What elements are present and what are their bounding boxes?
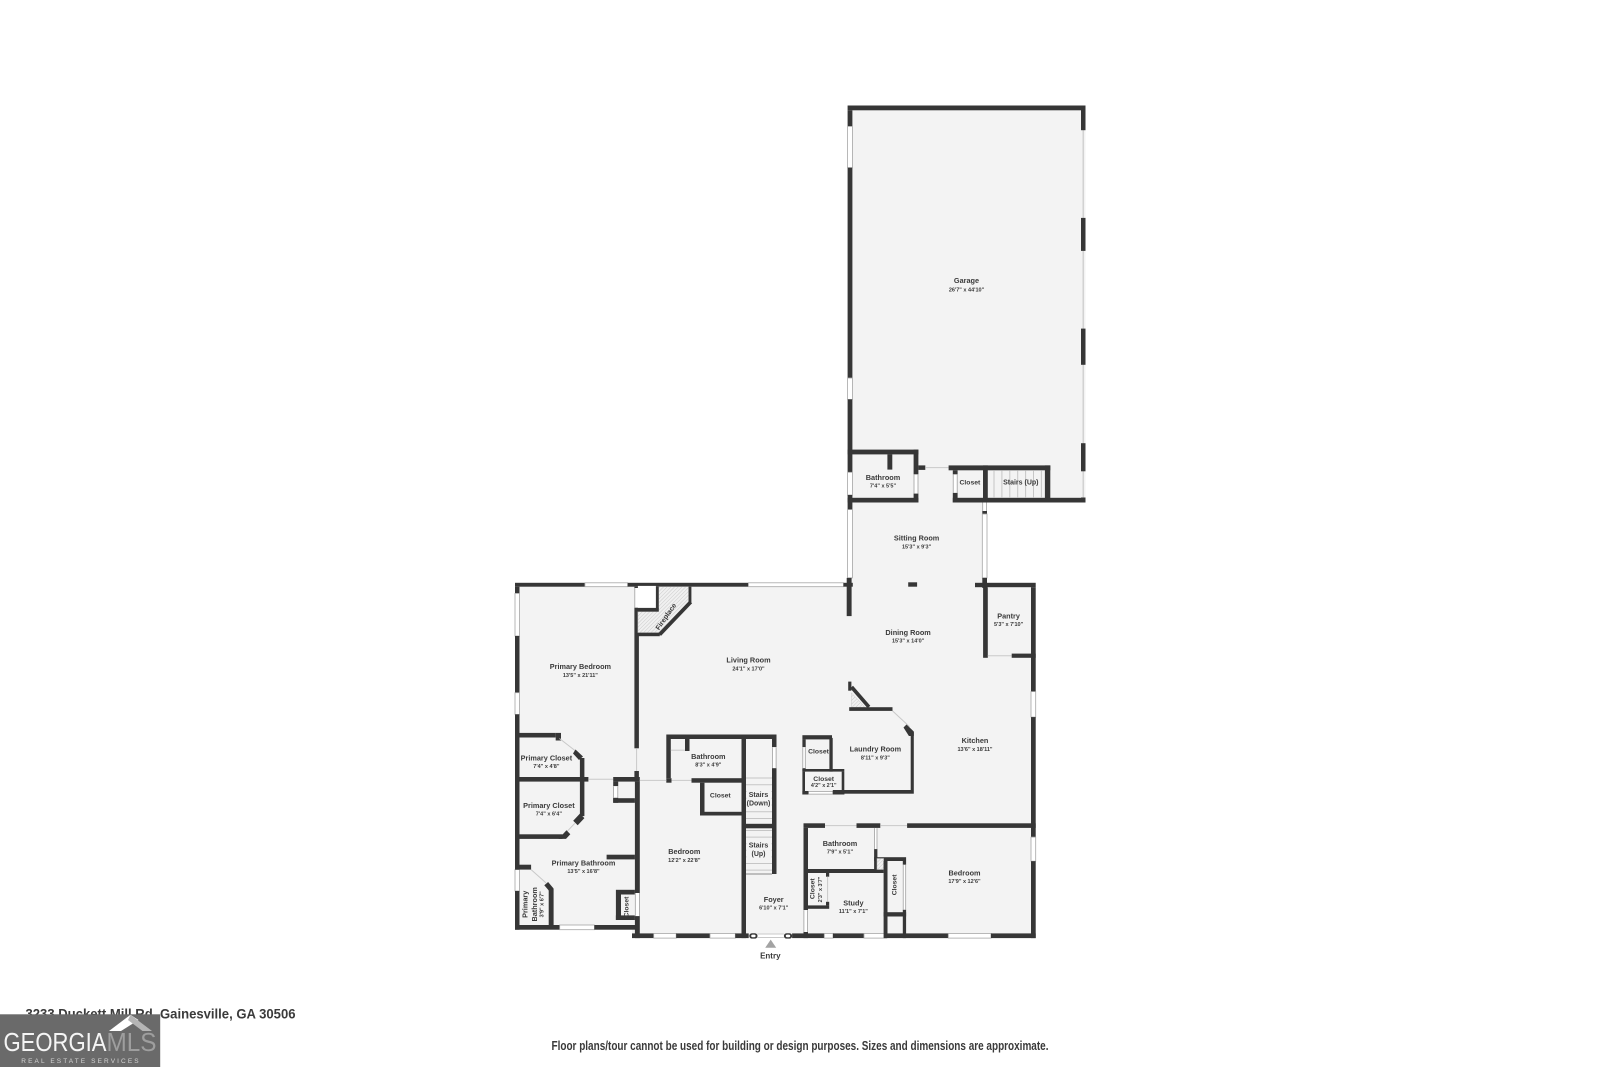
svg-text:11'1" x 7'1": 11'1" x 7'1" [839,909,868,915]
svg-text:3'9" x 6'7": 3'9" x 6'7" [539,891,545,918]
svg-text:Garage: Garage [954,276,979,285]
svg-text:Closet: Closet [960,479,982,486]
svg-text:7'4" x 5'5": 7'4" x 5'5" [870,484,897,490]
svg-text:15'3" x 9'3": 15'3" x 9'3" [902,544,932,550]
svg-text:Primary Bedroom: Primary Bedroom [550,662,612,671]
svg-text:Bathroom: Bathroom [691,752,726,761]
svg-text:Bathroom: Bathroom [530,887,539,922]
svg-text:13'6" x 18'11": 13'6" x 18'11" [957,747,992,753]
svg-text:Foyer: Foyer [764,895,784,904]
svg-text:Closet: Closet [891,874,898,896]
svg-text:GEORGIA: GEORGIA [4,1027,108,1057]
svg-text:Entry: Entry [760,952,781,961]
svg-text:13'5" x 16'8": 13'5" x 16'8" [567,869,600,875]
svg-text:Laundry Room: Laundry Room [850,745,902,754]
svg-text:Stairs: Stairs [749,842,769,849]
svg-text:Bedroom: Bedroom [668,847,701,856]
svg-text:MLS: MLS [107,1027,157,1057]
svg-text:26'7" x 44'10": 26'7" x 44'10" [949,287,985,293]
svg-text:Bathroom: Bathroom [866,473,901,482]
svg-text:Stairs: Stairs [749,792,769,799]
svg-text:2'3" x 3'7": 2'3" x 3'7" [818,876,824,902]
svg-text:Bathroom: Bathroom [823,839,858,848]
svg-text:Primary Closet: Primary Closet [521,754,573,763]
svg-text:Stairs (Up): Stairs (Up) [1003,479,1038,486]
svg-text:Primary: Primary [521,890,530,918]
svg-text:Closet: Closet [810,878,817,900]
svg-text:REAL ESTATE SERVICES: REAL ESTATE SERVICES [21,1058,140,1065]
svg-text:15'3" x 14'0": 15'3" x 14'0" [892,639,925,645]
svg-text:Closet: Closet [710,792,732,799]
svg-text:7'9" x 5'1": 7'9" x 5'1" [827,850,854,856]
svg-text:(Up): (Up) [752,851,766,858]
svg-text:24'1" x 17'0": 24'1" x 17'0" [732,666,765,672]
svg-text:Closet: Closet [813,776,835,783]
svg-text:Study: Study [843,899,864,908]
svg-text:5'3" x 7'10": 5'3" x 7'10" [994,622,1024,628]
svg-text:Sitting Room: Sitting Room [894,533,940,542]
svg-text:Closet: Closet [808,748,830,755]
svg-text:Dining Room: Dining Room [885,628,931,637]
svg-text:Living Room: Living Room [726,655,771,664]
svg-text:8'11" x 9'3": 8'11" x 9'3" [861,755,890,761]
svg-text:Floor plans/tour cannot be use: Floor plans/tour cannot be used for buil… [552,1038,1049,1053]
svg-text:7'4" x 6'4": 7'4" x 6'4" [536,812,563,818]
svg-text:Pantry: Pantry [997,611,1021,620]
svg-text:Primary Bathroom: Primary Bathroom [552,858,616,867]
svg-text:Primary Closet: Primary Closet [523,801,575,810]
svg-text:8'3" x 4'9": 8'3" x 4'9" [695,763,722,769]
svg-text:4'2" x 2'1": 4'2" x 2'1" [811,783,837,789]
svg-text:Closet: Closet [623,896,630,918]
svg-text:Kitchen: Kitchen [962,736,989,745]
svg-text:(Down): (Down) [747,801,771,808]
svg-text:Bedroom: Bedroom [948,868,981,877]
svg-text:17'9" x 12'6": 17'9" x 12'6" [948,879,981,885]
svg-text:13'5" x 21'11": 13'5" x 21'11" [563,673,598,679]
svg-text:6'10" x 7'1": 6'10" x 7'1" [759,905,789,911]
svg-text:7'4" x 4'8": 7'4" x 4'8" [533,764,560,770]
svg-text:12'2" x 22'8": 12'2" x 22'8" [668,858,701,864]
